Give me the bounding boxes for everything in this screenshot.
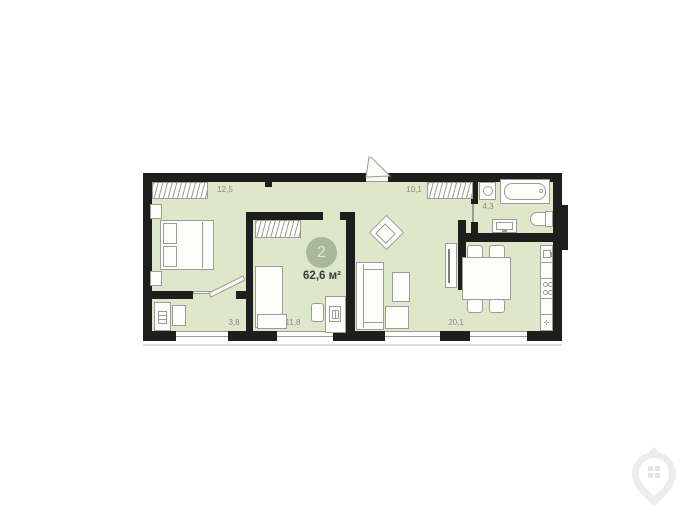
desk-chair-icon bbox=[311, 303, 324, 322]
outer-wall-right-jog bbox=[553, 205, 568, 250]
basin-bowl-icon bbox=[496, 222, 513, 230]
wall-kitchen-top bbox=[460, 233, 553, 242]
faucet-icon bbox=[550, 252, 552, 257]
coffee-table-icon bbox=[392, 272, 410, 302]
kitchen-sink-icon bbox=[540, 245, 553, 263]
bathtub-drain-icon bbox=[539, 189, 543, 193]
washing-machine-icon bbox=[479, 182, 496, 200]
outer-wall-bottom-segment bbox=[228, 331, 277, 341]
room-area-label-entry-hall: 10,1 bbox=[406, 185, 422, 194]
wall-stub-bedroom bbox=[265, 173, 272, 187]
wash-basin-icon bbox=[492, 219, 517, 233]
entrance-door-opening bbox=[366, 173, 388, 182]
dining-chair-icon bbox=[467, 299, 483, 313]
room-area-label-living-kitchen: 20,1 bbox=[448, 318, 464, 327]
wall-room2-left bbox=[246, 212, 253, 331]
window bbox=[176, 331, 228, 341]
nightstand-icon bbox=[150, 271, 162, 286]
bed-blanket-icon bbox=[257, 314, 287, 329]
ottoman-icon bbox=[385, 306, 409, 329]
floor-plan: ✛ 12,5 10,1 4,3 3,8 11,8 20,1 2 62,6 м² bbox=[0, 0, 688, 516]
dining-chair-icon bbox=[489, 299, 505, 313]
sofa-back-line bbox=[363, 264, 364, 328]
toilet-icon bbox=[530, 212, 546, 226]
outer-wall-left bbox=[143, 173, 152, 341]
kitchen-counter-icon bbox=[540, 298, 553, 315]
tv-unit-icon bbox=[445, 243, 457, 288]
burner-icon bbox=[548, 282, 553, 287]
bathroom-door-opening bbox=[472, 204, 474, 222]
wall-room2-top bbox=[246, 212, 323, 220]
computer-icon bbox=[329, 306, 341, 322]
bed-pillow-icon bbox=[163, 246, 177, 267]
wall-bedroom-bottom bbox=[147, 291, 193, 299]
wardrobe-icon bbox=[427, 182, 473, 199]
computer-screen-icon bbox=[332, 310, 339, 319]
bathtub-icon bbox=[500, 179, 550, 204]
hall-cabinet-icon bbox=[154, 302, 171, 331]
bedroom-door-opening bbox=[193, 291, 211, 294]
dining-table-icon bbox=[462, 257, 511, 300]
room-count-badge: 2 bbox=[306, 237, 337, 268]
basin-tap-icon bbox=[502, 230, 507, 233]
window bbox=[470, 331, 527, 341]
hall-bench-icon bbox=[172, 305, 186, 326]
burner-icon bbox=[543, 290, 548, 295]
kitchen-counter-icon bbox=[540, 262, 553, 279]
stove-icon bbox=[540, 278, 553, 299]
nightstand-icon bbox=[150, 204, 162, 219]
washer-drum-icon bbox=[483, 186, 493, 196]
bed-blanket-line bbox=[202, 222, 203, 268]
burner-icon bbox=[543, 282, 548, 287]
toilet-tank-icon bbox=[545, 211, 553, 227]
wardrobe-icon bbox=[152, 182, 208, 199]
cabinet-drawers-icon bbox=[158, 311, 167, 324]
developer-logo-watermark bbox=[626, 444, 682, 508]
room-area-label-bedroom: 12,5 bbox=[217, 185, 233, 194]
outer-wall-bottom-segment bbox=[440, 331, 470, 341]
window bbox=[385, 331, 440, 341]
ground-shadow-line bbox=[143, 344, 562, 346]
wall-bedroom-bottom-stub bbox=[236, 291, 246, 299]
sofa-icon bbox=[356, 262, 384, 330]
sofa-armrest-line bbox=[364, 322, 383, 323]
tv-screen-line bbox=[448, 249, 450, 283]
room-area-label-hallway: 3,8 bbox=[228, 318, 239, 327]
outer-wall-bottom-segment bbox=[527, 331, 562, 341]
outer-wall-bottom-segment bbox=[143, 331, 176, 341]
room-area-label-bathroom: 4,3 bbox=[482, 202, 493, 211]
vent-symbol-icon: ✛ bbox=[540, 314, 553, 331]
room-area-label-room-2: 11,8 bbox=[286, 318, 301, 327]
outer-wall-top-left bbox=[143, 173, 366, 182]
outer-wall-right bbox=[553, 173, 562, 341]
bed-pillow-icon bbox=[163, 223, 177, 244]
wall-bathroom-left-lower bbox=[471, 222, 478, 233]
armchair-seat-icon bbox=[375, 223, 396, 244]
total-area-label: 62,6 м² bbox=[303, 270, 341, 282]
double-bed-icon bbox=[160, 220, 214, 270]
burner-icon bbox=[548, 290, 553, 295]
sofa-armrest-line bbox=[364, 269, 383, 270]
wall-room2-right bbox=[346, 212, 355, 331]
wardrobe-icon bbox=[255, 220, 301, 238]
